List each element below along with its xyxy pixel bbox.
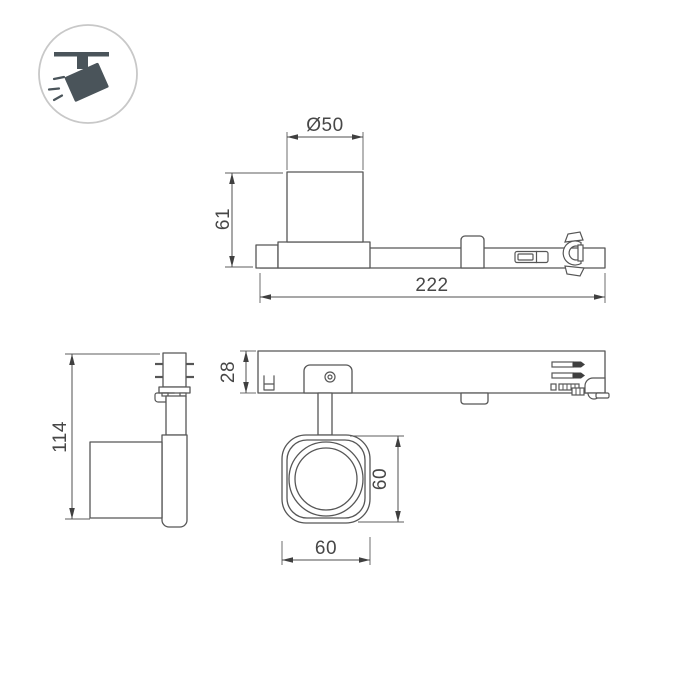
connector-latch xyxy=(578,245,583,261)
lens-front-view: 60 60 xyxy=(282,393,404,565)
slider-switch-knob xyxy=(518,254,533,260)
dim-label-total-length: 222 xyxy=(415,275,448,296)
dimension-rail-height: 28 xyxy=(218,351,256,393)
front-rail-view: 28 xyxy=(218,351,609,404)
lamp-head-side xyxy=(90,442,162,518)
dimension-total-length: 222 xyxy=(260,273,605,303)
dim-label-head-height-front: 60 xyxy=(370,468,391,490)
rail-bottom-tab xyxy=(461,393,488,404)
dim-label-fixture-height: 114 xyxy=(50,421,71,453)
icon-track-bar xyxy=(54,52,109,57)
dim-label-head-height: 61 xyxy=(213,208,234,230)
rail-contact-pin xyxy=(552,362,585,368)
dimension-head-width-front: 60 xyxy=(282,537,370,565)
icon-light-ray xyxy=(49,89,59,90)
track-adapter-outline xyxy=(163,353,186,387)
track-spotlight-icon xyxy=(39,25,137,123)
adapter-flange xyxy=(159,387,190,393)
dimension-drawing: Ø50 61 222 xyxy=(0,0,700,700)
icon-stem xyxy=(77,56,88,69)
side-view: 114 xyxy=(50,353,194,527)
terminal-connector-piece xyxy=(572,388,584,395)
screw-center xyxy=(328,375,332,379)
rail-mount-block xyxy=(461,236,484,268)
back-plate xyxy=(162,435,187,527)
rail-end-foot xyxy=(596,393,609,398)
rail-contact-pin xyxy=(552,373,585,379)
stem-outline xyxy=(166,396,186,435)
top-view-side-elevation: Ø50 61 222 xyxy=(213,115,605,303)
terminal-block xyxy=(551,384,556,390)
lamp-cylinder-outline xyxy=(287,172,363,242)
mounting-collar xyxy=(278,242,370,268)
stem-front xyxy=(318,393,332,435)
rail-end-cap xyxy=(256,245,278,268)
dim-label-head-width-front: 60 xyxy=(315,538,337,559)
dim-label-lens-diameter: Ø50 xyxy=(306,115,343,136)
rail-end-step xyxy=(585,378,605,393)
dimension-lens-diameter: Ø50 xyxy=(287,115,363,170)
dim-label-rail-height: 28 xyxy=(218,361,239,383)
lens-inner-circle xyxy=(295,448,357,510)
connector-bottom-tab xyxy=(565,266,584,276)
